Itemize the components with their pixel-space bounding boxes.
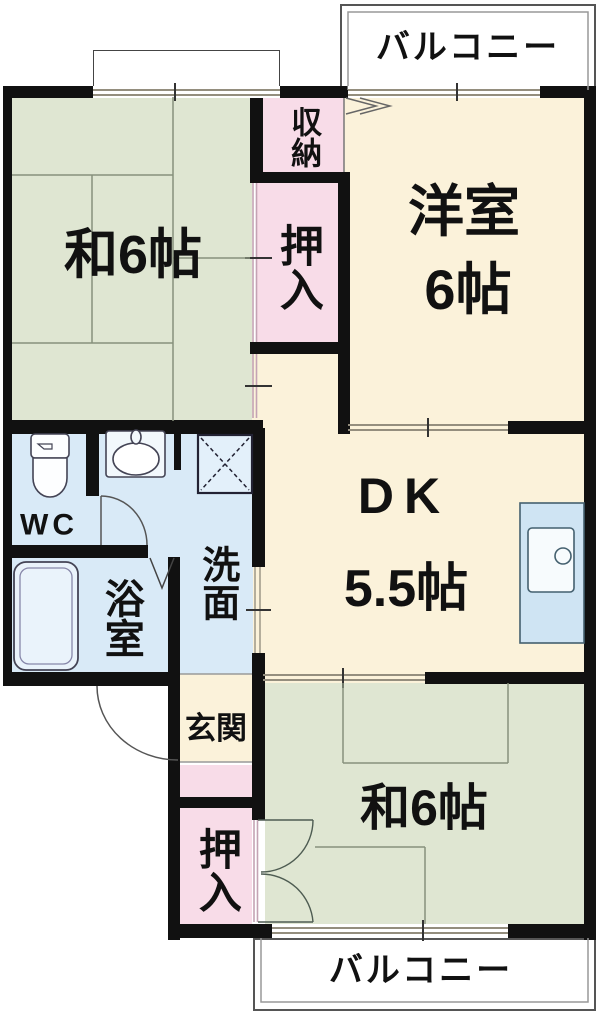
wall xyxy=(180,797,265,808)
wall xyxy=(174,428,181,470)
wall xyxy=(280,86,350,98)
label-dk: DK xyxy=(358,470,450,522)
floor-plan: バルコニー 和6帖 収納 押入 洋室 6帖 DK 5.5帖 WC 洗面 浴室 玄… xyxy=(0,0,600,1016)
utility-strip xyxy=(180,765,252,797)
wall xyxy=(3,545,148,558)
wall xyxy=(168,686,180,940)
label-shuno: 収納 xyxy=(287,106,319,168)
wall xyxy=(3,672,180,686)
label-wc: WC xyxy=(20,509,78,540)
wall xyxy=(3,86,12,686)
wall xyxy=(250,172,350,183)
wall xyxy=(250,342,350,354)
wall xyxy=(338,172,350,434)
label-genkan: 玄関 xyxy=(185,713,247,745)
label-washitsu-bottom: 和6帖 xyxy=(360,782,488,834)
wall xyxy=(252,428,265,567)
label-senmen: 洗面 xyxy=(196,545,236,621)
wall xyxy=(584,86,596,940)
wall xyxy=(168,924,272,938)
bay-window-box xyxy=(93,50,280,87)
wall xyxy=(508,924,596,938)
wall xyxy=(252,762,265,820)
wall xyxy=(425,672,584,684)
label-washitsu-top: 和6帖 xyxy=(64,227,202,283)
wall xyxy=(508,421,596,434)
wall xyxy=(86,428,99,496)
wall xyxy=(3,420,263,434)
label-youshitsu-size: 6帖 xyxy=(424,261,511,319)
label-yokushitsu: 浴室 xyxy=(99,578,141,658)
label-youshitsu: 洋室 xyxy=(408,183,520,241)
wall xyxy=(252,653,265,762)
label-dk-size: 5.5帖 xyxy=(344,562,468,616)
label-balcony-top: バルコニー xyxy=(376,30,560,65)
label-oshiire-top: 押入 xyxy=(274,223,320,311)
label-oshiire-bottom: 押入 xyxy=(194,827,239,913)
wall xyxy=(168,557,180,674)
label-balcony-bottom: バルコニー xyxy=(329,953,513,988)
wall xyxy=(250,86,263,182)
wall xyxy=(3,86,93,98)
